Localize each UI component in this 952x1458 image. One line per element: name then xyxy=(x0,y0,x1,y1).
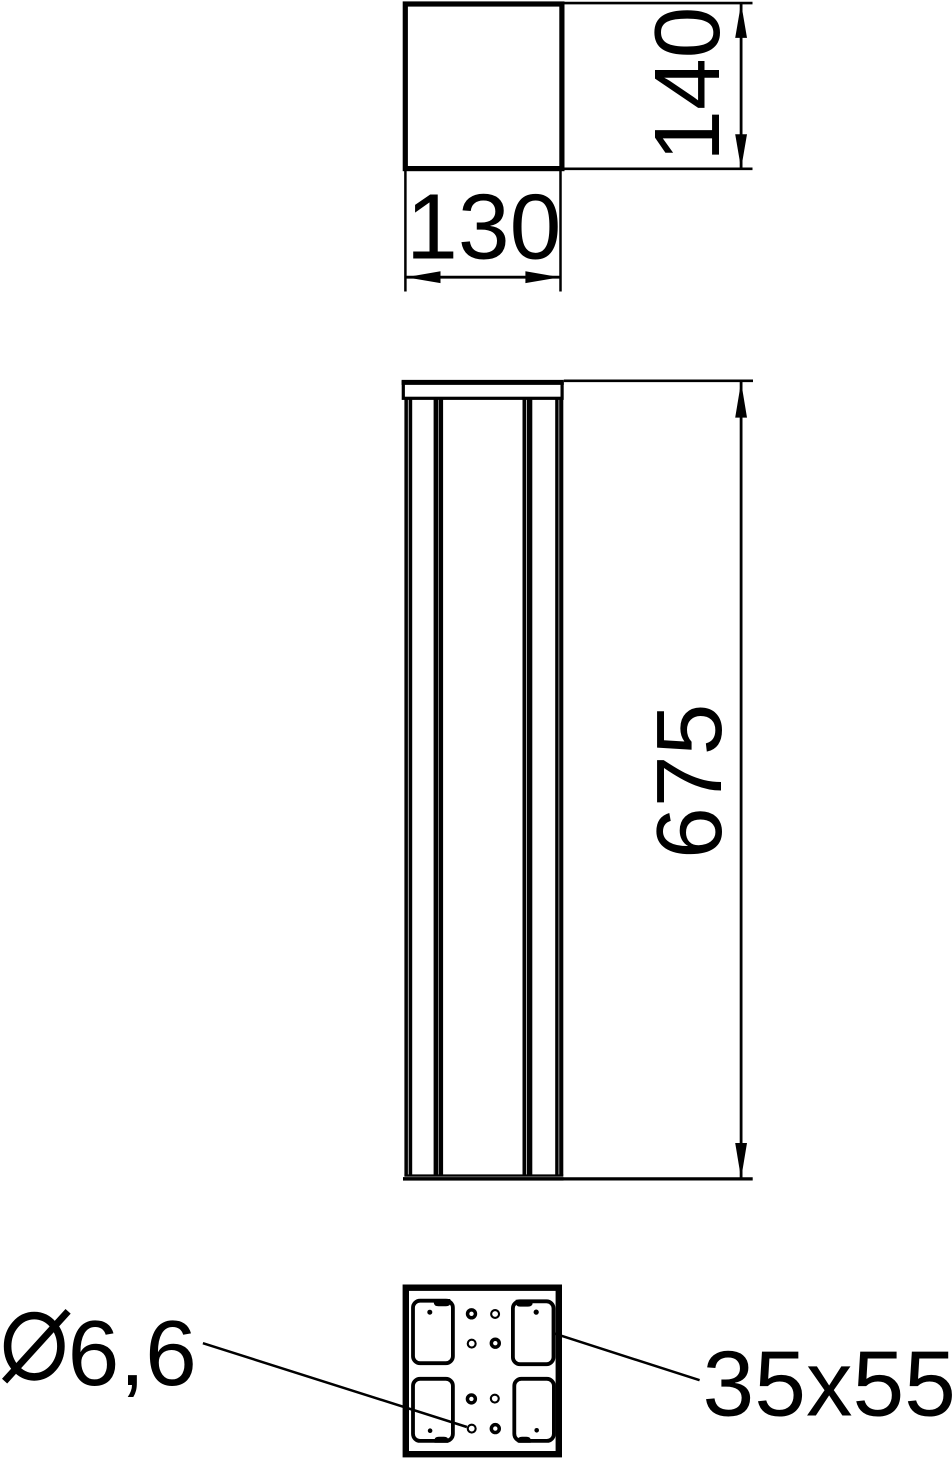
svg-text:140: 140 xyxy=(635,7,739,162)
svg-text:675: 675 xyxy=(637,704,741,859)
svg-text:35x55: 35x55 xyxy=(703,1332,952,1436)
svg-text:6,6: 6,6 xyxy=(68,1301,197,1405)
svg-text:130: 130 xyxy=(406,174,561,278)
